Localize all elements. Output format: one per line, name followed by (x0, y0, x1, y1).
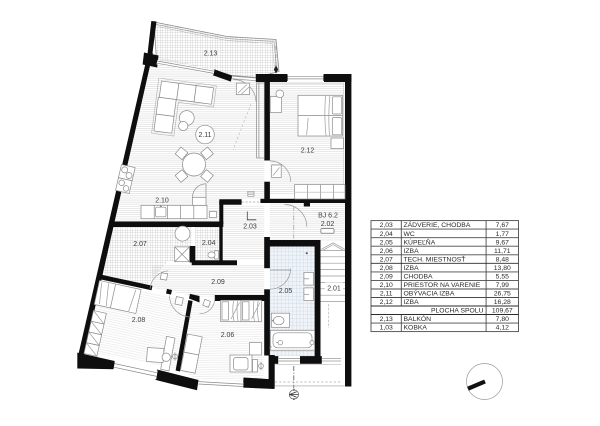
svg-text:BJ 6.2: BJ 6.2 (318, 213, 338, 220)
svg-text:109,67: 109,67 (492, 308, 513, 315)
svg-text:KÚPEĽŇA: KÚPEĽŇA (404, 237, 436, 246)
svg-text:2.11: 2.11 (198, 132, 211, 139)
svg-text:8,48: 8,48 (496, 256, 509, 263)
svg-text:t°: t° (269, 346, 272, 351)
svg-text:2.13: 2.13 (204, 51, 218, 58)
svg-text:2.08: 2.08 (132, 317, 146, 324)
svg-text:4,12: 4,12 (496, 325, 509, 332)
svg-text:11,71: 11,71 (494, 248, 511, 255)
svg-text:2,10: 2,10 (380, 282, 393, 289)
svg-text:13,80: 13,80 (494, 265, 511, 272)
svg-text:KOBKA: KOBKA (404, 325, 428, 332)
svg-text:1,77: 1,77 (496, 231, 509, 238)
svg-text:2,07: 2,07 (380, 256, 393, 263)
svg-text:WC: WC (404, 231, 415, 238)
svg-text:2.01: 2.01 (327, 286, 341, 293)
svg-text:IZBA: IZBA (404, 248, 420, 255)
svg-text:IZBA: IZBA (404, 299, 420, 306)
svg-text:2,04: 2,04 (380, 231, 393, 238)
svg-text:16,28: 16,28 (494, 299, 511, 306)
svg-text:2.03: 2.03 (243, 224, 257, 231)
svg-text:CHODBA: CHODBA (404, 274, 434, 281)
svg-text:2,05: 2,05 (380, 239, 393, 246)
svg-text:2,08: 2,08 (380, 265, 393, 272)
svg-text:PRIESTOR NA VARENIE: PRIESTOR NA VARENIE (404, 282, 481, 289)
svg-text:PLOCHA SPOLU: PLOCHA SPOLU (431, 308, 484, 315)
svg-text:2,09: 2,09 (380, 274, 393, 281)
svg-text:2.02: 2.02 (321, 221, 335, 228)
svg-text:2.12: 2.12 (301, 147, 315, 154)
svg-text:7,67: 7,67 (496, 222, 509, 229)
svg-text:IZBA: IZBA (404, 265, 420, 272)
svg-text:ZÁDVERIE, CHODBA: ZÁDVERIE, CHODBA (404, 220, 471, 229)
svg-text:2,06: 2,06 (380, 248, 393, 255)
svg-text:TECH. MIESTNOSŤ: TECH. MIESTNOSŤ (404, 254, 466, 263)
svg-text:2.07: 2.07 (133, 241, 147, 248)
svg-text:7,99: 7,99 (496, 282, 509, 289)
svg-text:1,03: 1,03 (380, 325, 393, 332)
svg-text:2,13: 2,13 (380, 316, 393, 323)
svg-text:7,80: 7,80 (496, 316, 509, 323)
svg-text:OBÝVACIA IZBA: OBÝVACIA IZBA (404, 289, 455, 298)
svg-text:5,55: 5,55 (496, 274, 509, 281)
svg-text:BALKÓN: BALKÓN (404, 314, 432, 323)
svg-text:9,67: 9,67 (496, 239, 509, 246)
svg-text:2.05: 2.05 (279, 288, 293, 295)
svg-text:2,11: 2,11 (380, 291, 393, 298)
svg-text:26,75: 26,75 (494, 291, 511, 298)
svg-text:2.04: 2.04 (202, 240, 216, 247)
svg-text:2.09: 2.09 (211, 279, 225, 286)
svg-text:2.10: 2.10 (155, 197, 169, 204)
svg-text:2.06: 2.06 (221, 332, 235, 339)
svg-text:2,12: 2,12 (380, 299, 393, 306)
svg-text:2,03: 2,03 (380, 222, 393, 229)
